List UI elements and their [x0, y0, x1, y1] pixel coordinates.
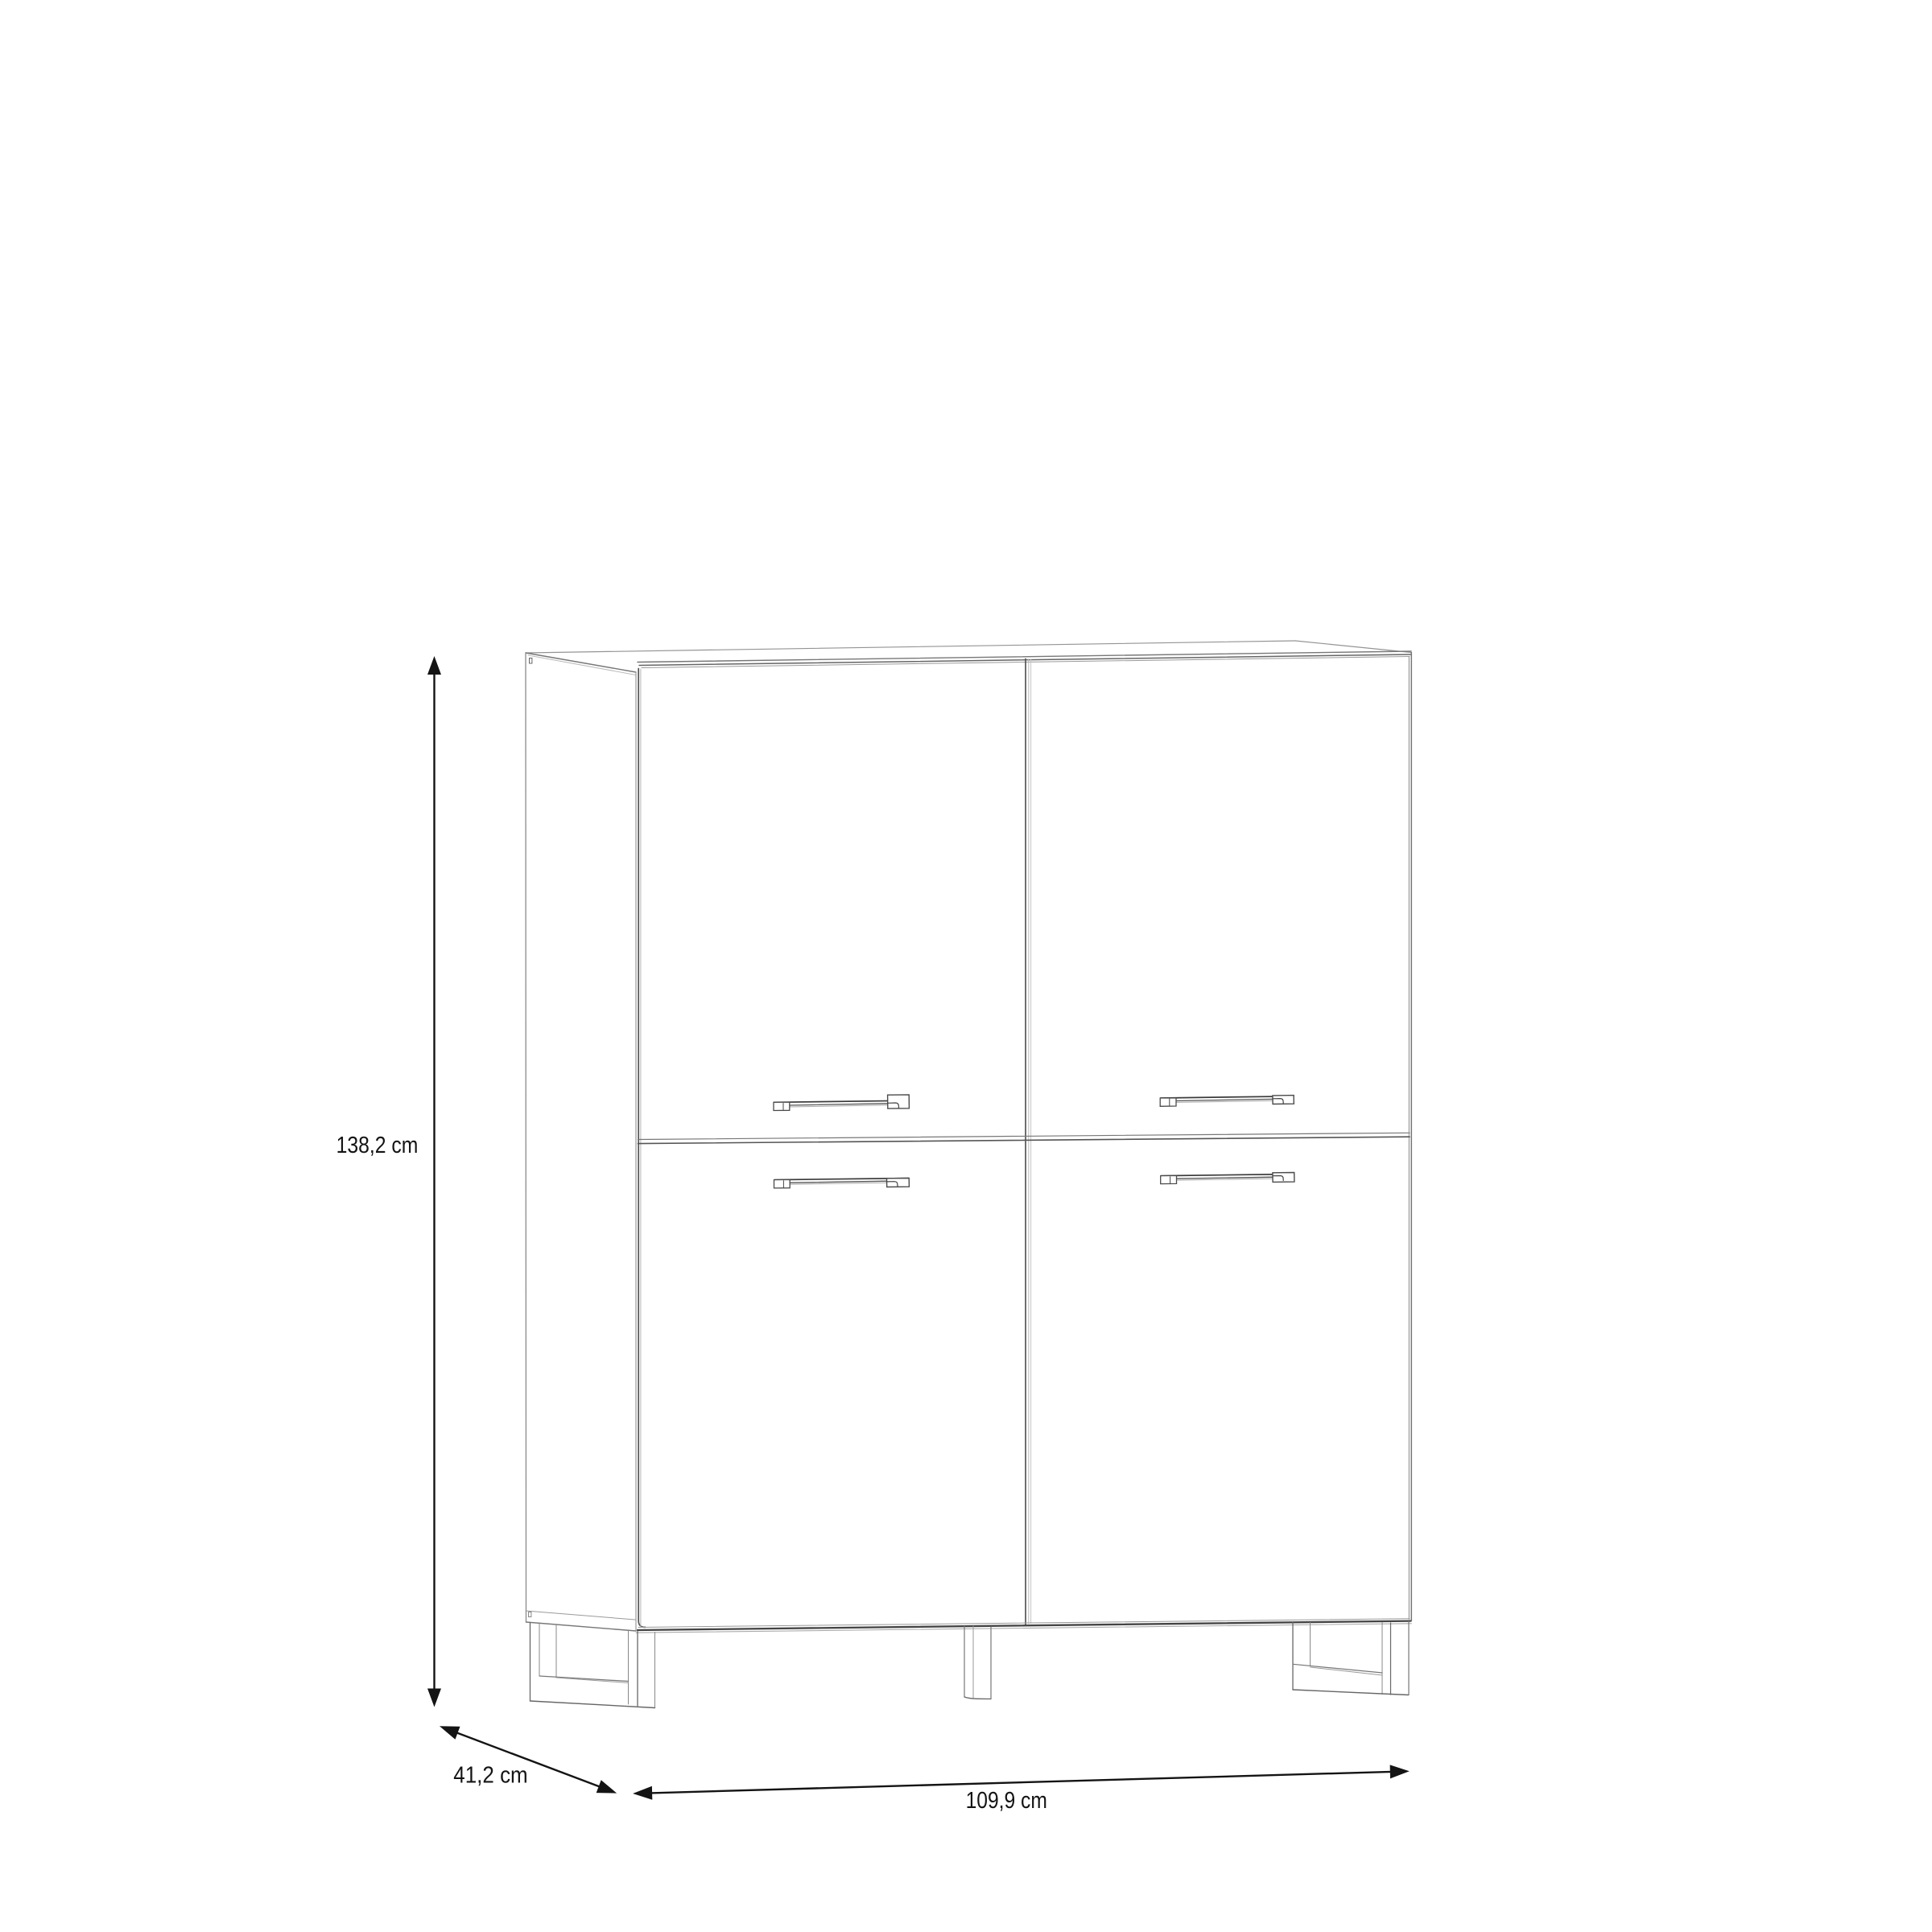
- svg-text:138,2 cm: 138,2 cm: [336, 1133, 419, 1158]
- svg-text:41,2 cm: 41,2 cm: [453, 1763, 527, 1789]
- svg-text:109,9 cm: 109,9 cm: [966, 1788, 1047, 1814]
